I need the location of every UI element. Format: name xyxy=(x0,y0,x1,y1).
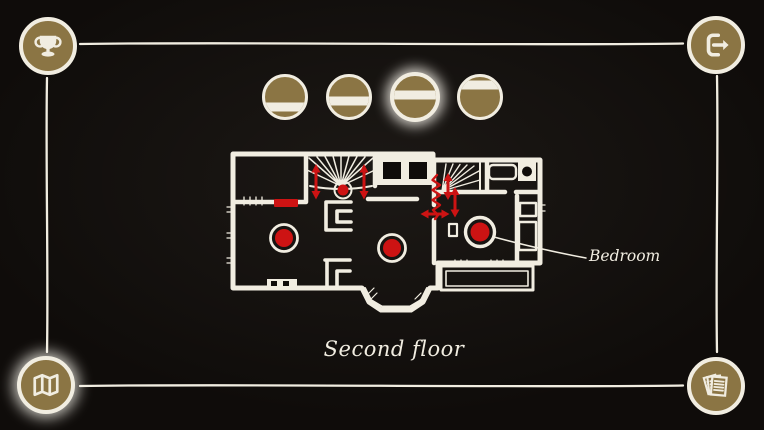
exit-button[interactable] xyxy=(687,16,745,74)
room-marker-hall xyxy=(379,235,406,262)
journal-button[interactable] xyxy=(687,357,745,415)
map-screen: Second floor Bedroom xyxy=(0,0,764,430)
floor-plan xyxy=(227,154,545,310)
cards-icon xyxy=(698,368,734,404)
floor-button-3[interactable] xyxy=(390,72,440,122)
achievements-button[interactable] xyxy=(19,17,77,75)
map-button[interactable] xyxy=(17,356,75,414)
floor-band xyxy=(326,97,372,106)
floor-caption: Second floor xyxy=(324,337,465,361)
trophy-icon xyxy=(30,28,66,64)
red-door-bar xyxy=(274,199,298,207)
floor-button-4[interactable] xyxy=(457,74,503,120)
floor-button-1[interactable] xyxy=(262,74,308,120)
floor-button-2[interactable] xyxy=(326,74,372,120)
floor-band xyxy=(457,81,503,90)
map-icon xyxy=(28,367,64,403)
bathtub xyxy=(489,165,516,179)
map-drawing xyxy=(0,0,764,430)
bedroom-label: Bedroom xyxy=(589,247,660,265)
room-marker-west xyxy=(271,225,298,252)
floor-band xyxy=(390,90,440,99)
room-marker-bedroom xyxy=(466,218,495,247)
exit-icon xyxy=(698,27,734,63)
floor-band xyxy=(262,102,308,111)
frame-lines xyxy=(47,43,718,386)
